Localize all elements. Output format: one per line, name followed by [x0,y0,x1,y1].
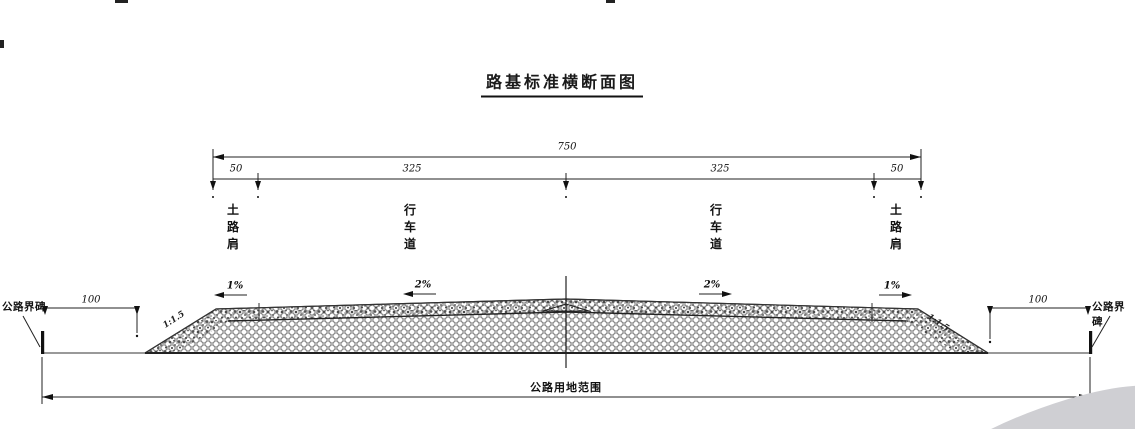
label-left-carriageway: 行车道 [402,204,419,255]
label-right-earth-shoulder: 土路肩 [888,204,905,255]
dim-right-lane: 325 [710,164,729,175]
dim-left-margin: 100 [81,295,100,306]
slope-right-shoulder: 1% [884,281,900,292]
scan-artifacts [0,0,615,48]
right-margin-dimension [987,306,1091,343]
slope-right-lane: 2% [704,280,720,291]
label-right-boundary-marker: 公路界碑 [1092,299,1135,329]
dim-left-shoulder: 50 [230,164,243,175]
cross-fall-arrows [214,291,912,298]
dim-left-lane: 325 [402,164,421,175]
cross-section-drawing [0,0,1135,429]
dim-right-shoulder: 50 [891,164,904,175]
slope-left-shoulder: 1% [227,281,243,292]
left-margin-dimension [42,306,140,337]
top-dimension-lines [210,149,924,198]
dim-right-margin: 100 [1028,295,1047,306]
slope-left-lane: 2% [415,280,431,291]
label-right-carriageway: 行车道 [708,204,725,255]
drawing-title: 路基标准横断面图 [481,69,643,98]
dim-total-width: 750 [557,142,576,153]
label-land-use-range: 公路用地范围 [530,379,602,395]
label-left-boundary-marker: 公路界碑 [2,299,46,314]
roadbed-cross-section-sheet: 路基标准横断面图 750 50 325 325 50 100 100 土路肩 行… [0,0,1135,429]
label-left-earth-shoulder: 土路肩 [225,204,242,255]
